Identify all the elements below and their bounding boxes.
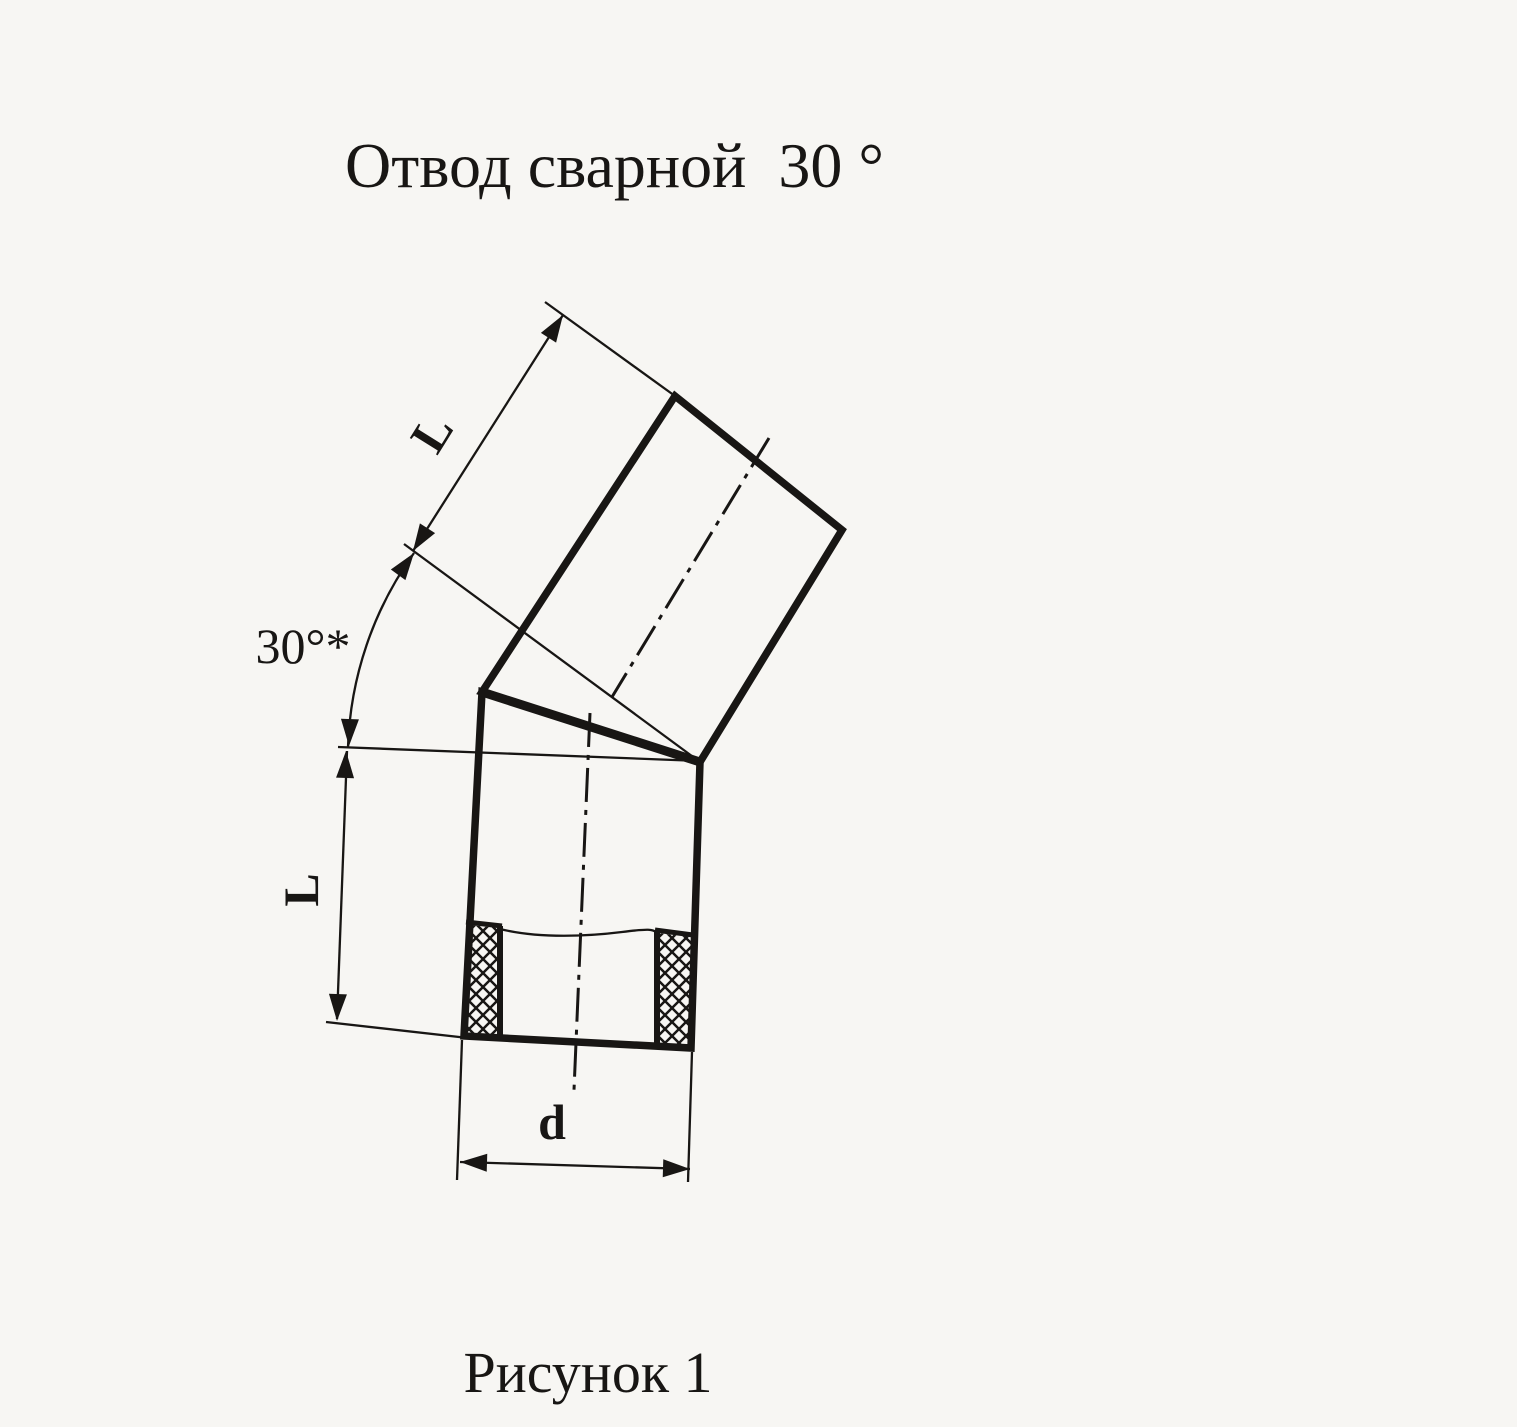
scanned-drawing-sheet: Отвод сварной 30 ° Рисунок 1 L (0, 0, 1517, 1427)
diameter-extension-line-left (457, 1040, 462, 1180)
angle-label: 30°* (256, 618, 351, 674)
miter-weld-joint-line (482, 692, 700, 762)
diameter-dimension-line (460, 1162, 690, 1169)
upper-length-extension-line-top (545, 302, 675, 396)
diameter-arrowhead-right (663, 1159, 691, 1178)
figure-caption: Рисунок 1 (464, 1340, 713, 1405)
lower-segment-centerline (574, 713, 590, 1090)
upper-length-arrowhead-bottom (405, 523, 435, 555)
left-wall-section-hatch (465, 925, 500, 1036)
right-wall-section-hatch (657, 933, 692, 1047)
upper-length-label: L (399, 404, 464, 462)
technical-drawing: Отвод сварной 30 ° Рисунок 1 L (0, 0, 1517, 1427)
upper-segment-centerline (612, 438, 769, 697)
diameter-arrowhead-left (460, 1153, 488, 1172)
drawing-title: Отвод сварной 30 ° (345, 130, 884, 201)
upper-length-extension-line-bottom (404, 544, 700, 762)
upper-length-arrowhead-top (541, 310, 571, 342)
lower-length-dimension-line (337, 751, 347, 1019)
angle-arc-arrowhead-bottom (340, 719, 359, 747)
pipe-break-line (500, 929, 658, 936)
lower-length-label: L (273, 873, 329, 906)
diameter-label: d (538, 1094, 566, 1150)
lower-length-arrowhead-top (336, 751, 355, 779)
lower-length-arrowhead-bottom (328, 994, 347, 1022)
angle-dimension-arc (348, 553, 414, 747)
lower-length-extension-line-bottom (326, 1022, 468, 1038)
diameter-extension-line-right (688, 1052, 692, 1182)
